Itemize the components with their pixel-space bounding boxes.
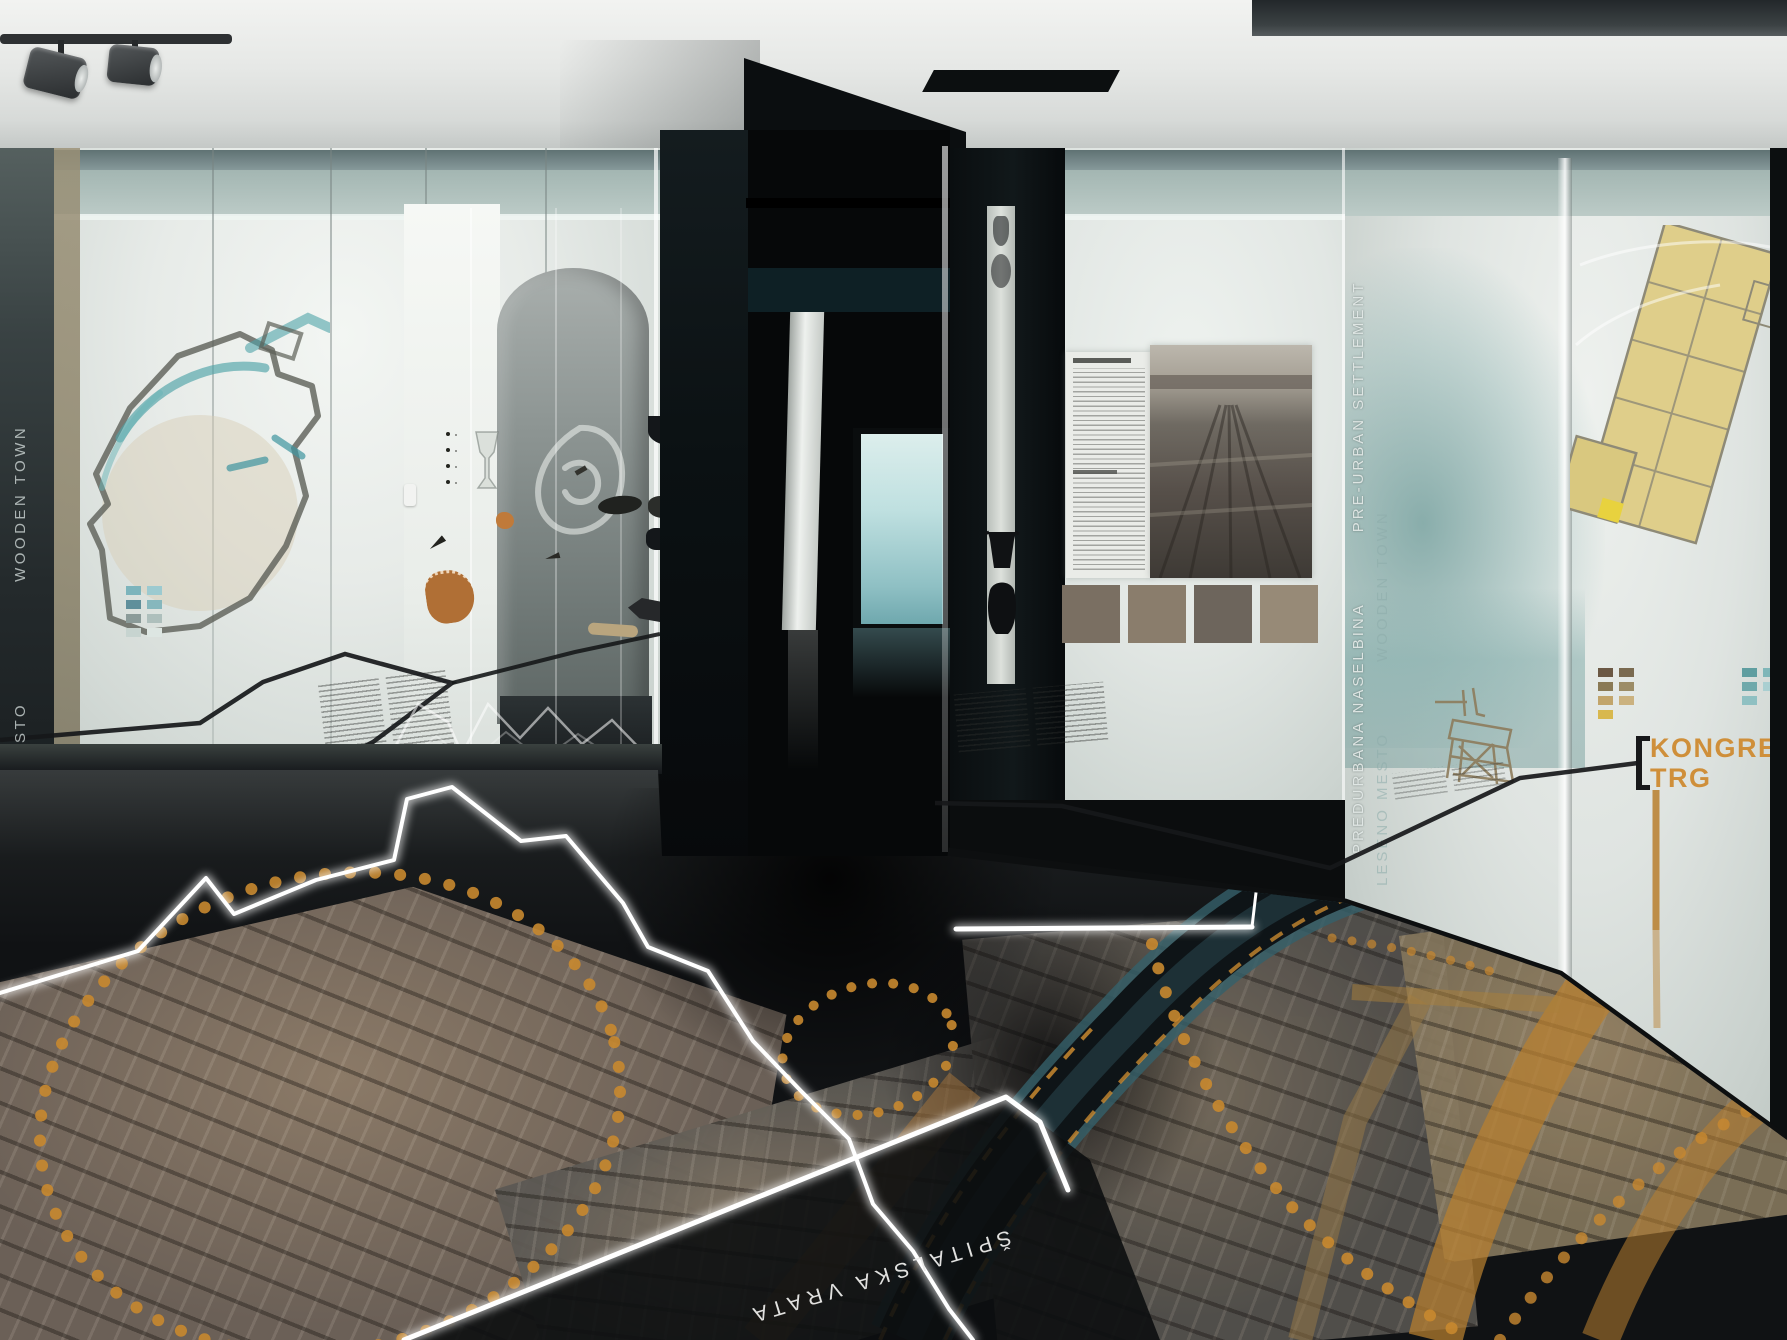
exhibition-room-photo: LJUBLJANSKI GRAD LESENO MESTOWOODEN TOWN [0, 0, 1787, 1340]
wall-baseboard [0, 744, 662, 774]
